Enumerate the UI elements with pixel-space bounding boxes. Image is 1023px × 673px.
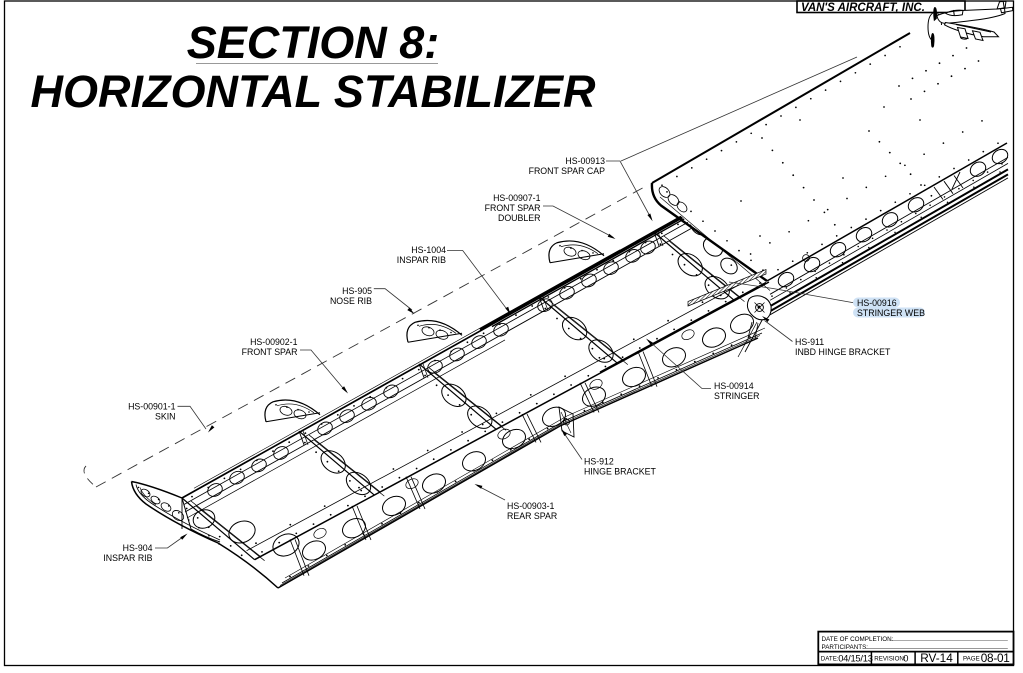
svg-text:HS-904: HS-904 bbox=[123, 543, 153, 553]
svg-text:NOSE RIB: NOSE RIB bbox=[330, 296, 372, 306]
svg-text:INSPAR RIB: INSPAR RIB bbox=[397, 255, 446, 265]
svg-text:REVISION:: REVISION: bbox=[874, 655, 906, 662]
svg-text:STRINGER: STRINGER bbox=[714, 391, 759, 401]
svg-text:HS-00903-1: HS-00903-1 bbox=[507, 501, 555, 511]
svg-text:HS-00907-1: HS-00907-1 bbox=[493, 193, 541, 203]
svg-text:HS-912: HS-912 bbox=[584, 457, 614, 467]
svg-text:SKIN: SKIN bbox=[155, 412, 176, 422]
svg-text:HS-1004: HS-1004 bbox=[411, 245, 446, 255]
svg-text:PARTICIPANTS:: PARTICIPANTS: bbox=[822, 644, 869, 651]
svg-text:REAR SPAR: REAR SPAR bbox=[507, 511, 557, 521]
svg-text:VAN'S AIRCRAFT, INC.: VAN'S AIRCRAFT, INC. bbox=[801, 2, 925, 14]
svg-text:HORIZONTAL STABILIZER: HORIZONTAL STABILIZER bbox=[31, 66, 596, 117]
svg-text:HS-00901-1: HS-00901-1 bbox=[128, 402, 176, 412]
svg-text:DOUBLER: DOUBLER bbox=[498, 213, 541, 223]
svg-text:DATE:: DATE: bbox=[821, 655, 839, 662]
svg-text:DATE OF COMPLETION:: DATE OF COMPLETION: bbox=[822, 636, 894, 643]
svg-text:FRONT SPAR: FRONT SPAR bbox=[242, 347, 298, 357]
svg-text:08-01: 08-01 bbox=[981, 651, 1010, 665]
svg-text:04/15/13: 04/15/13 bbox=[838, 652, 873, 663]
svg-text:HS-00902-1: HS-00902-1 bbox=[250, 337, 298, 347]
svg-text:HS-905: HS-905 bbox=[342, 286, 372, 296]
svg-text:FRONT SPAR CAP: FRONT SPAR CAP bbox=[529, 166, 606, 176]
svg-text:HS-00914: HS-00914 bbox=[714, 381, 754, 391]
svg-text:SECTION 8:: SECTION 8: bbox=[187, 17, 440, 68]
svg-text:INSPAR RIB: INSPAR RIB bbox=[103, 553, 152, 563]
svg-text:FRONT SPAR: FRONT SPAR bbox=[485, 203, 541, 213]
svg-text:STRINGER WEB: STRINGER WEB bbox=[857, 308, 925, 318]
svg-text:HS-00916: HS-00916 bbox=[857, 298, 897, 308]
svg-text:PAGE: PAGE bbox=[963, 655, 980, 662]
svg-text:0: 0 bbox=[903, 652, 908, 663]
svg-text:HS-911: HS-911 bbox=[795, 337, 824, 347]
svg-text:RV-14: RV-14 bbox=[920, 651, 953, 665]
svg-text:INBD HINGE BRACKET: INBD HINGE BRACKET bbox=[795, 347, 891, 357]
svg-text:HS-00913: HS-00913 bbox=[565, 156, 605, 166]
svg-text:HINGE BRACKET: HINGE BRACKET bbox=[584, 467, 656, 477]
